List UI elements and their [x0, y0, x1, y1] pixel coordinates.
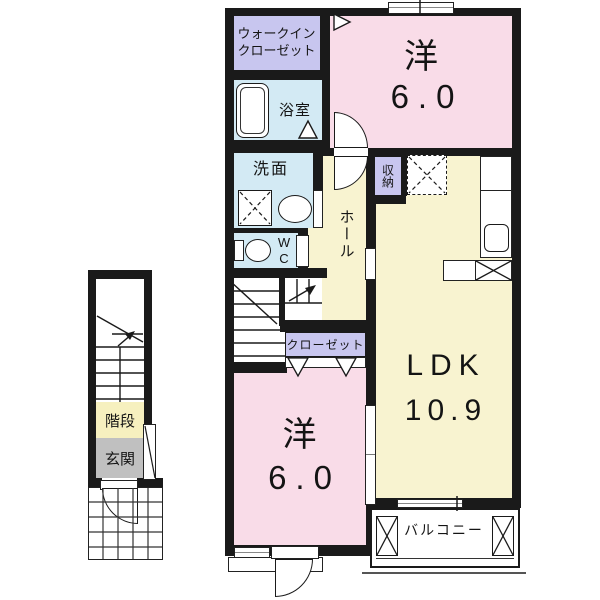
stair-divider-wall [279, 278, 285, 326]
sliding-door-tick [366, 454, 375, 455]
balcony-post-icon [376, 516, 398, 556]
stair-arrow-icon [125, 331, 135, 340]
wall [225, 362, 287, 373]
walk-in-closet-label-line2: クローゼット [237, 43, 315, 60]
bathtub-icon [240, 87, 265, 134]
kitchen-sink-icon [484, 224, 509, 252]
balcony-rail-line [376, 558, 514, 559]
window-icon [388, 2, 454, 14]
wall [366, 196, 406, 204]
bedroom-lower-size: 6.0 [238, 456, 371, 500]
wall [320, 8, 330, 80]
bedroom-upper-size: 6.0 [336, 75, 518, 119]
wc-label: W C [272, 234, 296, 267]
closet-bifold-door [285, 357, 366, 368]
washing-machine-icon [238, 190, 272, 226]
doorway [334, 148, 368, 156]
sink-icon [278, 195, 312, 223]
window-icon [398, 503, 462, 504]
refrigerator-icon [407, 155, 447, 195]
wall [144, 270, 152, 425]
door-arc-icon [275, 559, 313, 597]
storage-label: 収納 [376, 158, 400, 194]
bedroom-lower-name: 洋 [233, 408, 366, 454]
ldk-size: 10.9 [378, 390, 514, 432]
bathroom-label: 浴室 [268, 98, 322, 120]
wc-door [296, 235, 309, 267]
washroom-door [313, 190, 323, 228]
closet-label: クローゼット [285, 333, 366, 356]
staircase-label: 階段 [96, 404, 144, 436]
entrance-door-leaf [143, 424, 156, 480]
wall [225, 268, 327, 278]
bedroom-lower-exterior-door [271, 546, 319, 559]
wc-label-line1: W [278, 235, 290, 251]
window-icon [389, 7, 453, 8]
stairs-icon [96, 316, 144, 402]
washroom-label: 洗面 [238, 156, 304, 178]
balcony-label: バルコニー [398, 518, 490, 542]
wall [225, 228, 308, 233]
bedroom-upper-name: 洋 [330, 31, 512, 75]
wall [88, 270, 152, 279]
balcony-post-icon [492, 516, 514, 556]
balcony-outer-line [362, 572, 526, 574]
hall-ldk-sliding-door [365, 248, 376, 280]
hall-label: ホール [336, 198, 356, 270]
entrance-label: 玄関 [96, 442, 144, 474]
wc-label-line2: C [279, 251, 288, 267]
toilet-icon [245, 239, 271, 262]
window-icon [235, 552, 269, 553]
kitchen-counter [443, 260, 512, 281]
wall [225, 8, 521, 16]
wall [322, 148, 334, 156]
wall [322, 80, 330, 148]
kitchen-counter-divider [475, 260, 476, 281]
wall [88, 270, 96, 487]
wall [225, 8, 234, 556]
toilet-icon [234, 240, 244, 261]
floor-plan: ウォークイン クローゼット 浴室 洗面 W C ホール 収納 洋 6.0 LDK… [0, 0, 600, 600]
ldk-name: LDK [378, 346, 514, 386]
walk-in-closet-label: ウォークイン クローゼット [233, 20, 320, 66]
wall [225, 70, 330, 80]
wall [280, 320, 376, 332]
walk-in-closet-label-line1: ウォークイン [237, 26, 315, 43]
kitchen-counter-divider [480, 190, 512, 191]
